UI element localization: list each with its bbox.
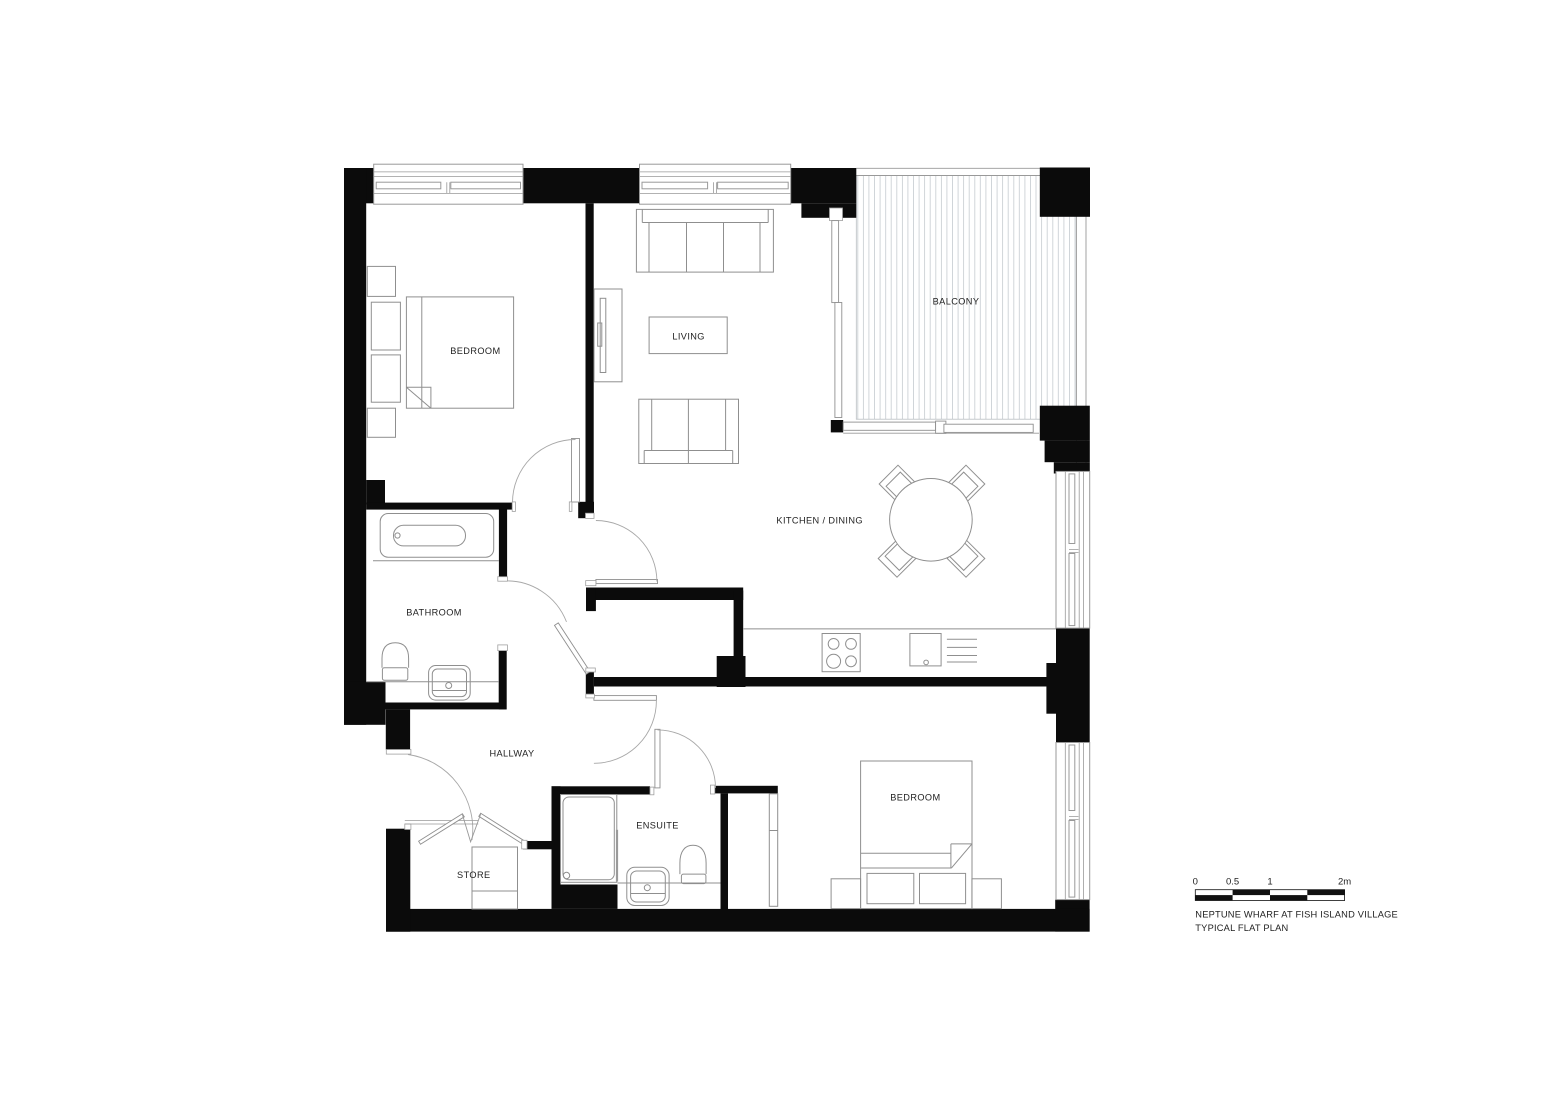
svg-text:0.5: 0.5 — [1226, 877, 1239, 888]
svg-text:TYPICAL FLAT PLAN: TYPICAL FLAT PLAN — [1195, 923, 1288, 933]
svg-text:LIVING: LIVING — [672, 332, 705, 342]
svg-text:BATHROOM: BATHROOM — [406, 608, 462, 618]
svg-text:0: 0 — [1193, 877, 1198, 888]
svg-text:HALLWAY: HALLWAY — [489, 749, 534, 759]
svg-text:BEDROOM: BEDROOM — [890, 792, 940, 802]
svg-text:NEPTUNE WHARF AT FISH ISLAND V: NEPTUNE WHARF AT FISH ISLAND VILLAGE — [1195, 909, 1398, 919]
svg-text:BEDROOM: BEDROOM — [450, 346, 500, 356]
svg-text:ENSUITE: ENSUITE — [636, 821, 679, 831]
svg-text:2m: 2m — [1338, 877, 1351, 888]
svg-text:KITCHEN / DINING: KITCHEN / DINING — [776, 515, 863, 525]
svg-text:STORE: STORE — [457, 870, 490, 880]
svg-text:BALCONY: BALCONY — [933, 297, 980, 307]
svg-text:1: 1 — [1267, 877, 1272, 888]
